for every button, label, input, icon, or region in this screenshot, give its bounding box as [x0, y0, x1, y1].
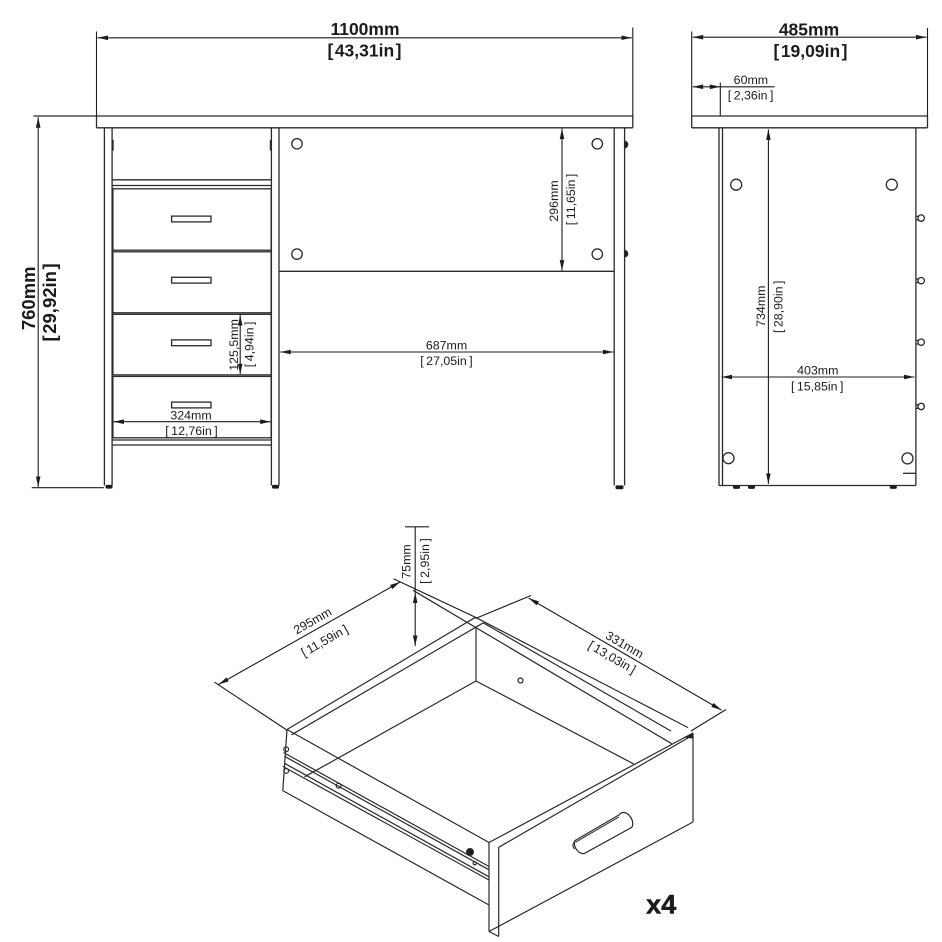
svg-text:324mm: 324mm — [170, 409, 211, 423]
svg-text:760mm: 760mm — [18, 266, 39, 330]
svg-text:[ 29,92in ]: [ 29,92in ] — [39, 263, 60, 341]
svg-text:x4: x4 — [646, 890, 676, 920]
svg-text:485mm: 485mm — [779, 20, 839, 40]
svg-text:75mm: 75mm — [399, 544, 413, 578]
svg-text:[ 15,85in ]: [ 15,85in ] — [791, 379, 844, 393]
svg-text:[ 4,94in ]: [ 4,94in ] — [242, 322, 256, 368]
svg-text:60mm: 60mm — [734, 73, 768, 87]
svg-text:[ 19,09in ]: [ 19,09in ] — [774, 41, 848, 61]
svg-text:687mm: 687mm — [426, 339, 467, 353]
svg-text:[ 27,05in ]: [ 27,05in ] — [420, 354, 473, 368]
svg-text:[ 12,76in ]: [ 12,76in ] — [165, 424, 218, 438]
svg-text:[ 2,95in ]: [ 2,95in ] — [418, 538, 432, 584]
svg-text:[ 11,65in ]: [ 11,65in ] — [564, 174, 578, 226]
svg-text:1100mm: 1100mm — [330, 19, 399, 39]
svg-text:[ 43,31in ]: [ 43,31in ] — [328, 40, 402, 60]
svg-text:[ 2,36in ]: [ 2,36in ] — [728, 89, 774, 103]
svg-text:125,5mm: 125,5mm — [227, 319, 241, 371]
svg-text:403mm: 403mm — [797, 364, 838, 378]
svg-text:[ 28,90in ]: [ 28,90in ] — [771, 281, 785, 334]
svg-text:734mm: 734mm — [754, 286, 768, 327]
svg-text:296mm: 296mm — [547, 180, 561, 221]
